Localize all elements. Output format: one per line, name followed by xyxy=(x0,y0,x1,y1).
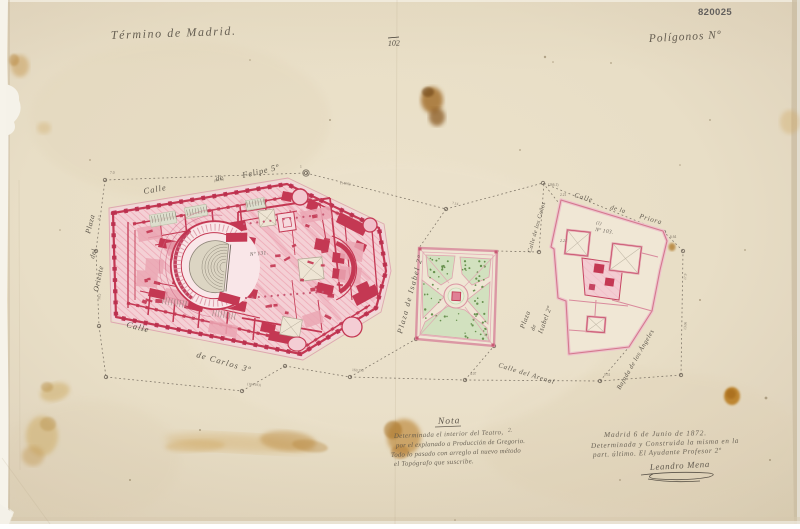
svg-text:169.193: 169.193 xyxy=(352,368,364,373)
svg-text:1: 1 xyxy=(300,165,302,169)
svg-text:2.21: 2.21 xyxy=(560,238,567,243)
svg-text:Nota: Nota xyxy=(437,416,461,427)
svg-text:1.51: 1.51 xyxy=(604,373,610,377)
svg-text:820025: 820025 xyxy=(698,7,732,18)
svg-text:Madrid 6 de Junio de 1872.: Madrid 6 de Junio de 1872. xyxy=(603,428,707,439)
svg-text:(166.1): (166.1) xyxy=(548,183,559,187)
svg-text:9.2: 9.2 xyxy=(97,215,102,220)
svg-text:17.9: 17.9 xyxy=(683,273,688,280)
svg-text:2.: 2. xyxy=(508,428,513,434)
svg-text:4.07: 4.07 xyxy=(470,372,476,376)
svg-text:6.64: 6.64 xyxy=(670,235,676,239)
svg-text:7.0: 7.0 xyxy=(110,171,115,175)
svg-text:13.06: 13.06 xyxy=(683,321,688,330)
svg-text:2.21: 2.21 xyxy=(560,193,566,197)
svg-text:102: 102 xyxy=(388,38,400,48)
